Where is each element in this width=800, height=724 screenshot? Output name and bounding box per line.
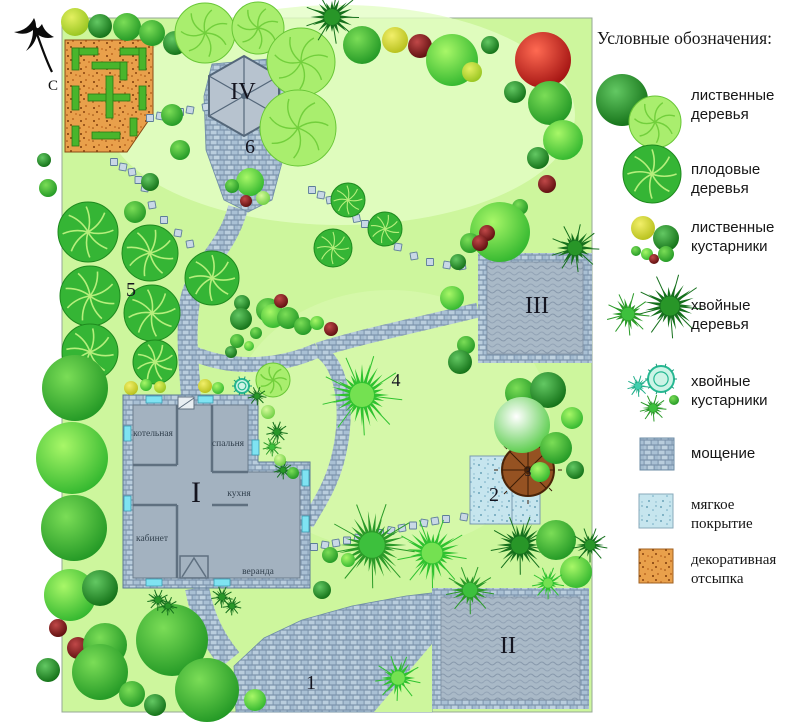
fruit-tree <box>623 145 681 203</box>
round-tree <box>36 658 60 682</box>
coniferous-shrub <box>645 364 677 394</box>
round-tree <box>561 407 583 429</box>
stepping-stone <box>427 259 434 266</box>
plan-area-label: IV <box>230 79 256 105</box>
round-tree <box>144 694 166 716</box>
stepping-stone <box>161 217 168 224</box>
round-tree <box>540 432 572 464</box>
conifer-tree <box>640 395 667 422</box>
plan-area-label: III <box>525 293 549 319</box>
lacy-tree <box>256 363 290 397</box>
stepping-stone <box>119 163 127 171</box>
round-tree <box>244 689 266 711</box>
round-tree <box>198 379 212 393</box>
stepping-stone <box>174 229 182 237</box>
plan-area-label: 5 <box>126 279 136 301</box>
plan-area-label: 6 <box>245 136 255 158</box>
round-tree <box>658 246 674 262</box>
round-tree <box>470 202 530 262</box>
plan-area-label: II <box>500 633 516 659</box>
round-tree <box>324 322 338 336</box>
stepping-stone <box>317 191 325 199</box>
room-label: спальня <box>212 439 245 449</box>
stepping-stone <box>311 544 318 551</box>
garden-plan-drawing: IV65III4I23II1котельнаяспальнякухнякабин… <box>0 0 800 724</box>
stepping-stone <box>394 243 402 251</box>
round-tree <box>631 246 641 256</box>
round-tree <box>42 355 108 421</box>
plan-area-label: 4 <box>392 370 401 390</box>
round-tree <box>462 62 482 82</box>
round-tree <box>39 179 57 197</box>
round-tree <box>450 254 466 270</box>
fruit-tree <box>122 225 178 281</box>
compass-north-letter: С <box>48 78 58 94</box>
fruit-tree <box>185 251 239 305</box>
round-tree <box>119 681 145 707</box>
round-tree <box>536 520 576 560</box>
round-tree <box>440 286 464 310</box>
round-tree <box>527 147 549 169</box>
round-tree <box>504 81 526 103</box>
lacy-tree <box>629 96 681 148</box>
stepping-stone <box>147 115 154 122</box>
round-tree <box>212 382 224 394</box>
round-tree <box>287 467 299 479</box>
fruit-tree <box>368 212 402 246</box>
room-label: веранда <box>242 567 275 577</box>
round-tree <box>669 395 679 405</box>
round-tree <box>139 20 165 46</box>
legend-label-decorative-mulch: декоративная отсыпка <box>691 551 799 589</box>
legend-tree-symbols <box>596 74 702 422</box>
round-tree <box>538 175 556 193</box>
stepping-stone <box>186 240 194 248</box>
round-tree <box>161 104 183 126</box>
legend-title: Условные обозначения: <box>597 28 797 49</box>
compass-north-icon: С <box>14 18 58 94</box>
round-tree <box>274 294 288 308</box>
round-tree <box>36 422 108 494</box>
round-tree <box>244 341 254 351</box>
round-tree <box>140 379 152 391</box>
round-tree <box>230 308 252 330</box>
stepping-stone <box>344 537 351 544</box>
round-tree <box>631 216 655 240</box>
fruit-tree <box>60 266 120 326</box>
stepping-stone <box>332 539 340 547</box>
round-tree <box>240 195 252 207</box>
lacy-tree <box>175 3 235 63</box>
legend-label-deciduous-shrubs: лиственные кустарники <box>691 218 799 256</box>
legend-symbol-soft-covering <box>639 494 673 528</box>
stepping-stone <box>460 513 468 521</box>
round-tree <box>543 120 583 160</box>
legend-label-coniferous-shrubs: хвойные кустарники <box>691 372 799 410</box>
round-tree <box>472 235 488 251</box>
conifer-tree <box>607 293 649 335</box>
stepping-stone <box>309 187 316 194</box>
round-tree <box>313 581 331 599</box>
round-tree <box>515 32 571 88</box>
fruit-tree <box>314 229 352 267</box>
round-tree <box>37 153 51 167</box>
room-label: кухня <box>227 489 251 499</box>
stepping-stone <box>431 517 439 525</box>
plan-area-label: 3 <box>525 464 532 479</box>
round-tree <box>341 553 355 567</box>
round-tree <box>170 140 190 160</box>
round-tree <box>225 179 239 193</box>
round-tree <box>448 350 472 374</box>
legend-label-soft-covering: мягкое покрытие <box>691 496 799 534</box>
stepping-stone <box>148 201 156 209</box>
round-tree <box>124 381 138 395</box>
round-tree <box>230 334 244 348</box>
stepping-stone <box>410 252 418 260</box>
landscape-plan-canvas: IV65III4I23II1котельнаяспальнякухнякабин… <box>0 0 800 724</box>
legend-label-coniferous-trees: хвойные деревья <box>691 296 799 334</box>
round-tree <box>124 201 146 223</box>
round-tree <box>154 381 166 393</box>
stepping-stone <box>443 261 451 269</box>
stepping-stone <box>111 159 118 166</box>
room-label: котельная <box>133 429 173 439</box>
fruit-tree <box>58 202 118 262</box>
round-tree <box>261 405 275 419</box>
round-tree <box>250 327 262 339</box>
plan-area-label: I <box>191 476 201 509</box>
fruit-tree <box>331 183 365 217</box>
round-tree <box>61 8 89 36</box>
entrance-door <box>178 397 194 409</box>
round-tree <box>49 619 67 637</box>
round-tree <box>310 316 324 330</box>
stepping-stone <box>410 522 417 529</box>
round-tree <box>481 36 499 54</box>
round-tree <box>225 346 237 358</box>
legend-label-deciduous-trees: лиственные деревья <box>691 86 799 124</box>
legend-symbol-paving <box>640 438 674 470</box>
round-tree <box>113 13 141 41</box>
stepping-stone <box>135 177 142 184</box>
round-tree <box>256 191 270 205</box>
round-tree <box>41 495 107 561</box>
round-tree <box>322 547 338 563</box>
legend-symbol-decorative-mulch <box>639 549 673 583</box>
plan-area-label: 2 <box>489 484 499 506</box>
lacy-tree <box>267 28 335 96</box>
round-tree <box>82 570 118 606</box>
plan-area-label: 1 <box>306 672 316 694</box>
round-tree <box>141 173 159 191</box>
round-tree <box>382 27 408 53</box>
stepping-stone <box>128 168 136 176</box>
stepping-stone <box>186 106 194 114</box>
round-tree <box>566 461 584 479</box>
round-tree <box>649 254 659 264</box>
round-tree <box>528 81 572 125</box>
porch-doors <box>180 556 208 578</box>
round-tree <box>343 26 381 64</box>
lacy-tree <box>260 90 336 166</box>
fruit-tree <box>133 340 177 384</box>
legend-label-fruit-trees: плодовые деревья <box>691 160 799 198</box>
round-tree <box>88 14 112 38</box>
round-tree <box>274 454 286 466</box>
round-tree <box>294 317 312 335</box>
round-tree <box>560 556 592 588</box>
round-tree <box>175 658 239 722</box>
room-label: кабинет <box>136 533 169 544</box>
stepping-stone <box>443 516 450 523</box>
stepping-stone <box>362 221 369 228</box>
round-tree <box>530 462 550 482</box>
legend-label-paving: мощение <box>691 444 799 463</box>
